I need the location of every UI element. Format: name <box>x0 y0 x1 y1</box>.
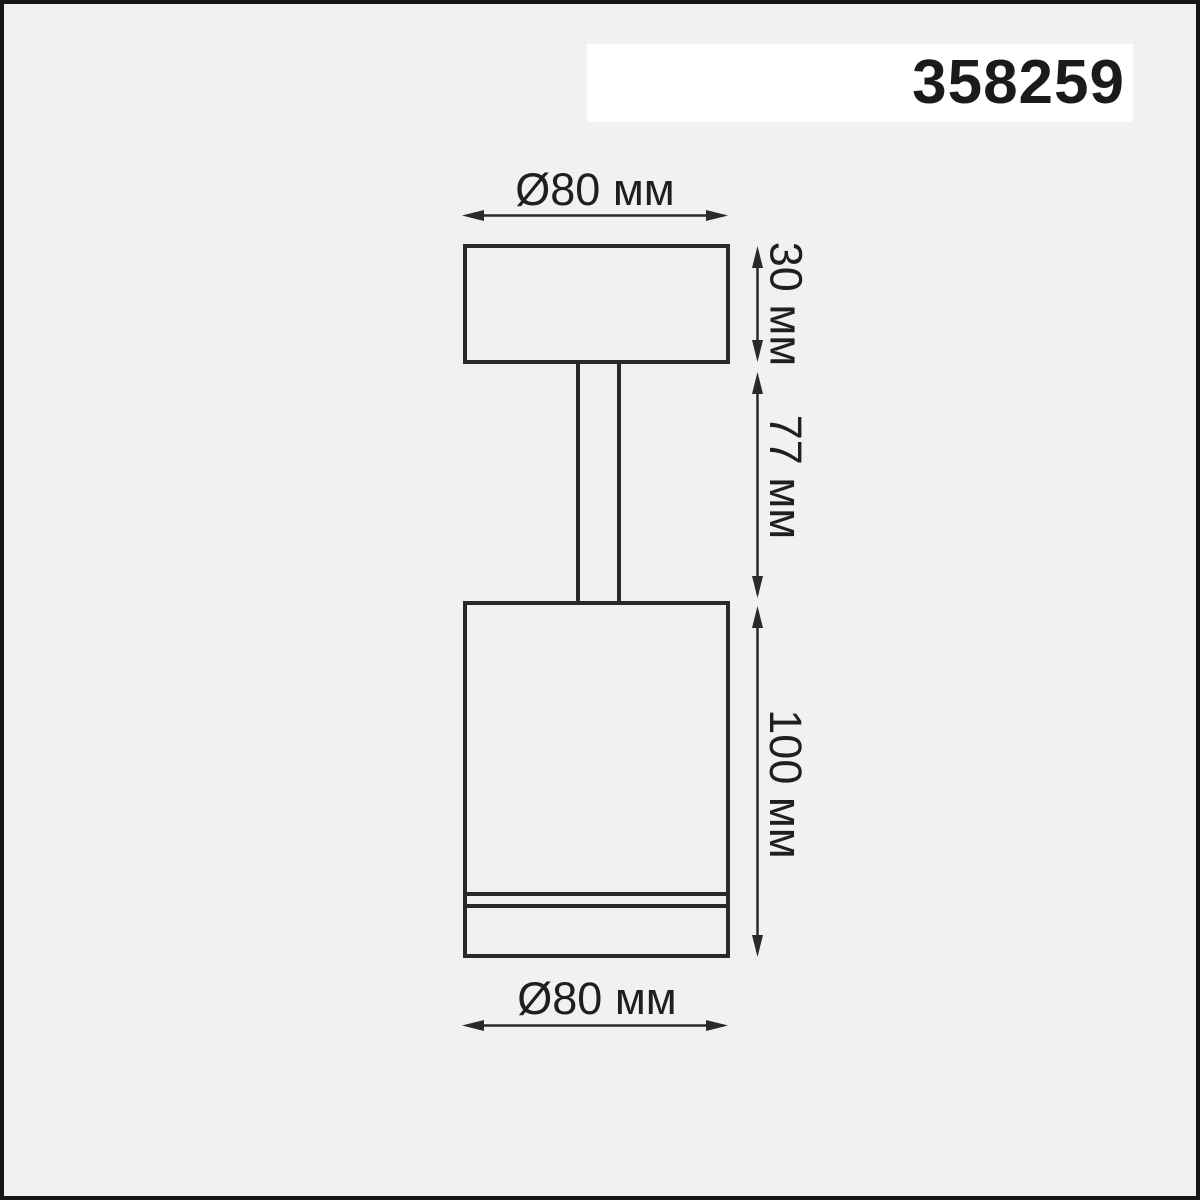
dim-label-stem-length: 77 мм <box>764 397 808 557</box>
dim-label-top-diameter: Ø80 мм <box>420 164 770 214</box>
dim-label-body-height: 100 мм <box>764 689 808 879</box>
dim-label-bottom-diameter: Ø80 мм <box>422 973 772 1023</box>
dim-label-canopy-height: 30 мм <box>765 232 809 377</box>
product-dimension-card: 358259 <box>0 0 1200 1200</box>
